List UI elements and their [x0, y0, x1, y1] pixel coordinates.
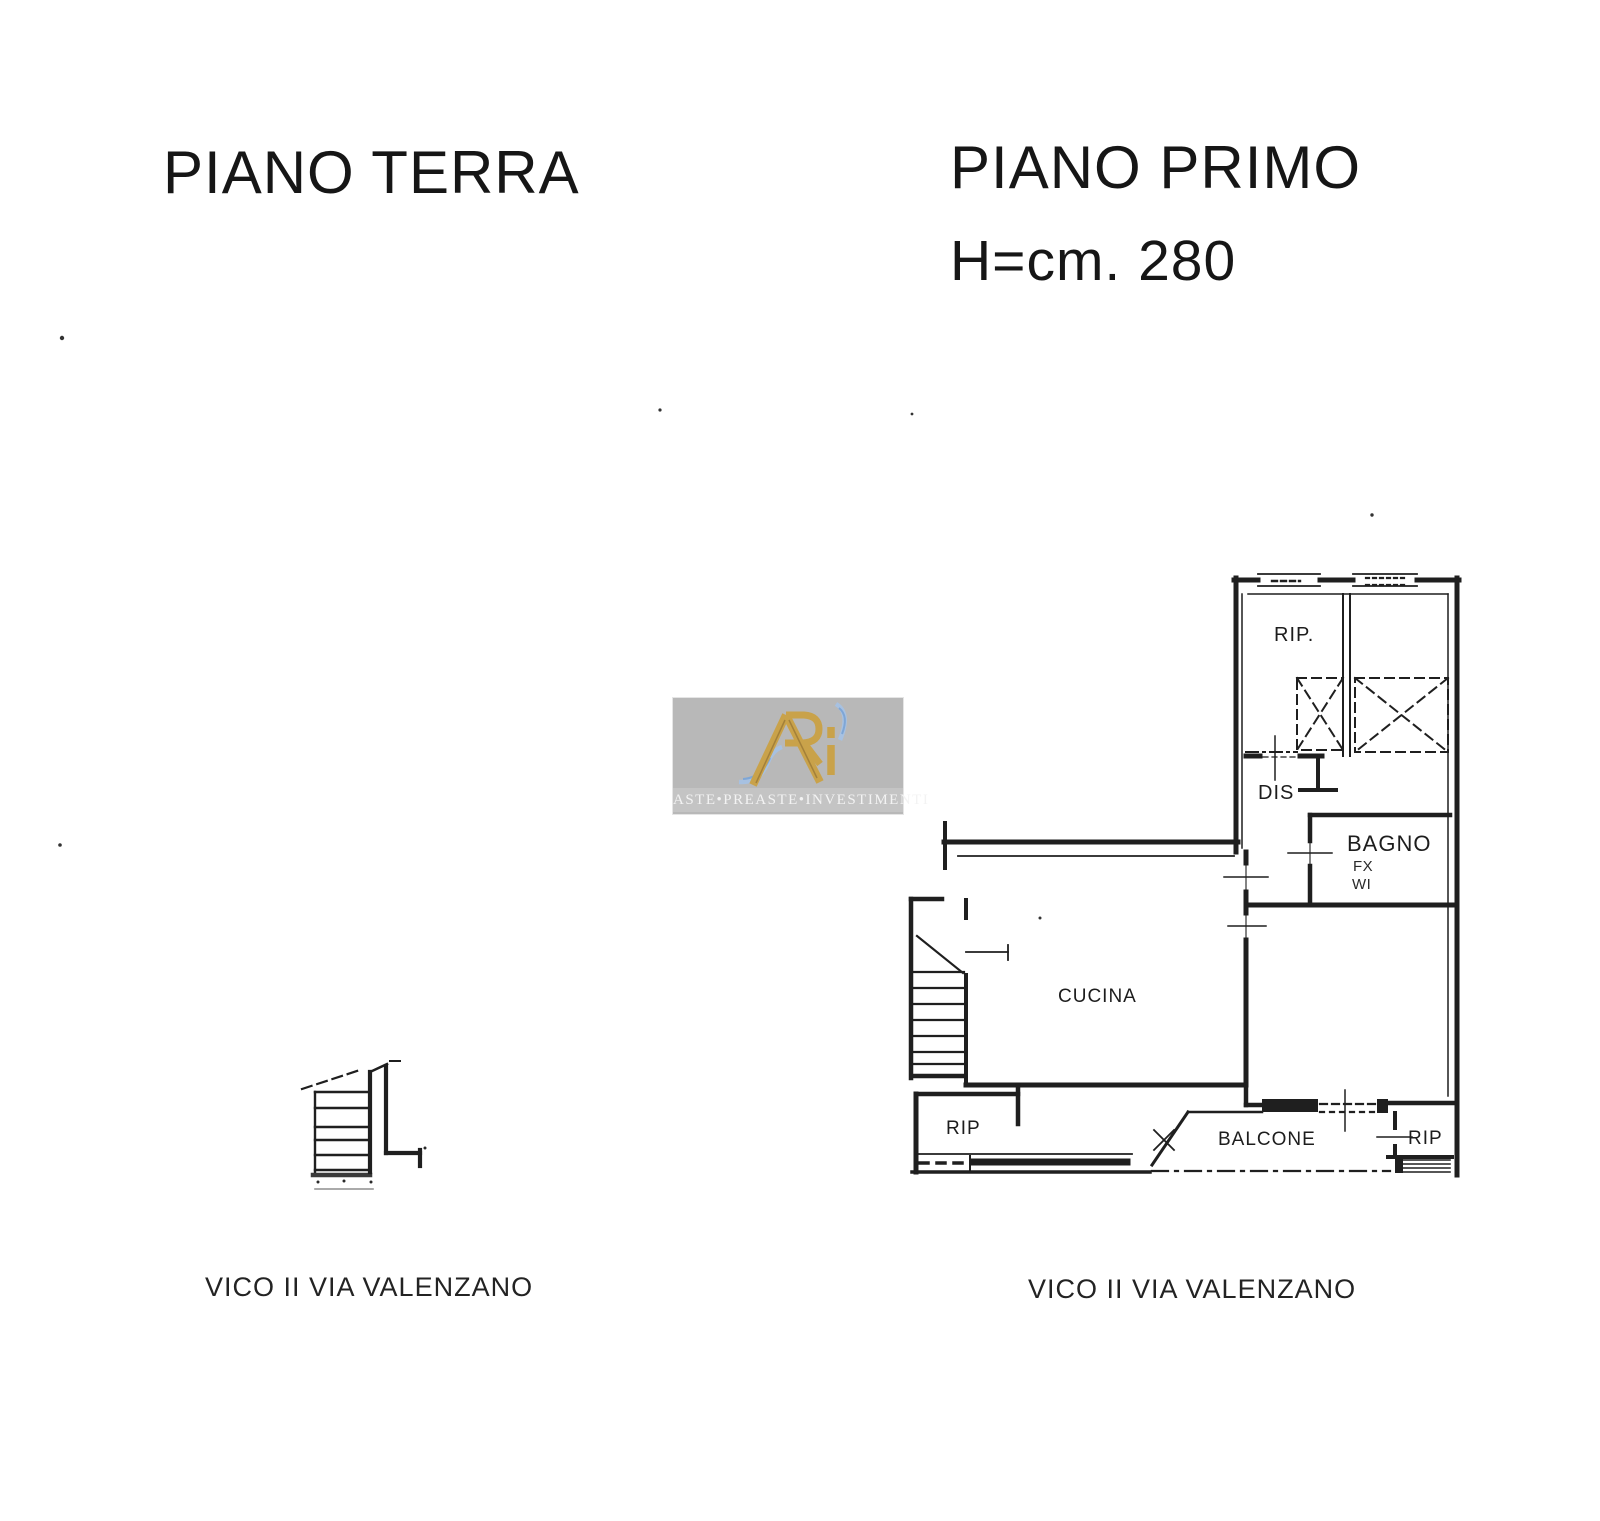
dis-west-wall [1224, 852, 1268, 1085]
railing-hatch [1403, 1160, 1450, 1172]
scan-noise [58, 336, 1374, 920]
room-label-hallway: DIS [1258, 782, 1294, 805]
stair-direction-line [917, 936, 963, 973]
room-label-storage-left: RIP [946, 1118, 981, 1140]
room-label-bathroom: BAGNO [1347, 831, 1431, 857]
ground-stair-wall [370, 1067, 420, 1172]
hatched-void-boxes [1246, 678, 1448, 752]
ground-floor-title: PIANO TERRA [163, 138, 580, 207]
south-facade [1246, 1090, 1457, 1131]
first-floor-plan [911, 574, 1459, 1175]
room-label-bathroom-note-2: WI [1352, 876, 1371, 893]
ground-stair-treads [315, 1092, 368, 1170]
stair-treads [912, 972, 964, 1064]
agency-watermark-text: ASTE•PREASTE•INVESTIMENTI [673, 788, 903, 812]
room-label-storage-top: RIP. [1274, 624, 1314, 647]
rip-partition-wall [1343, 594, 1350, 756]
ground-stair-direction [302, 1070, 360, 1089]
kitchen-north-wall [944, 823, 1238, 868]
ground-floor-stair [302, 1061, 427, 1189]
street-label-ground-floor: VICO II VIA VALENZANO [205, 1272, 533, 1303]
street-label-first-floor: VICO II VIA VALENZANO [1028, 1274, 1356, 1305]
room-label-storage-right: RIP [1408, 1128, 1443, 1150]
room-label-balcony: BALCONE [1218, 1129, 1316, 1151]
room-label-bathroom-note-1: FX [1353, 858, 1373, 875]
floor-plan-document: PIANO TERRA PIANO PRIMO H=cm. 280 RIP. D… [0, 0, 1600, 1521]
first-floor-height-note: H=cm. 280 [950, 228, 1236, 294]
agency-watermark: ASTE•PREASTE•INVESTIMENTI [673, 698, 903, 814]
agency-logo-icon [673, 698, 903, 788]
first-floor-title: PIANO PRIMO [950, 133, 1361, 202]
room-label-kitchen: CUCINA [1058, 986, 1137, 1008]
stairwell [911, 899, 1008, 1085]
